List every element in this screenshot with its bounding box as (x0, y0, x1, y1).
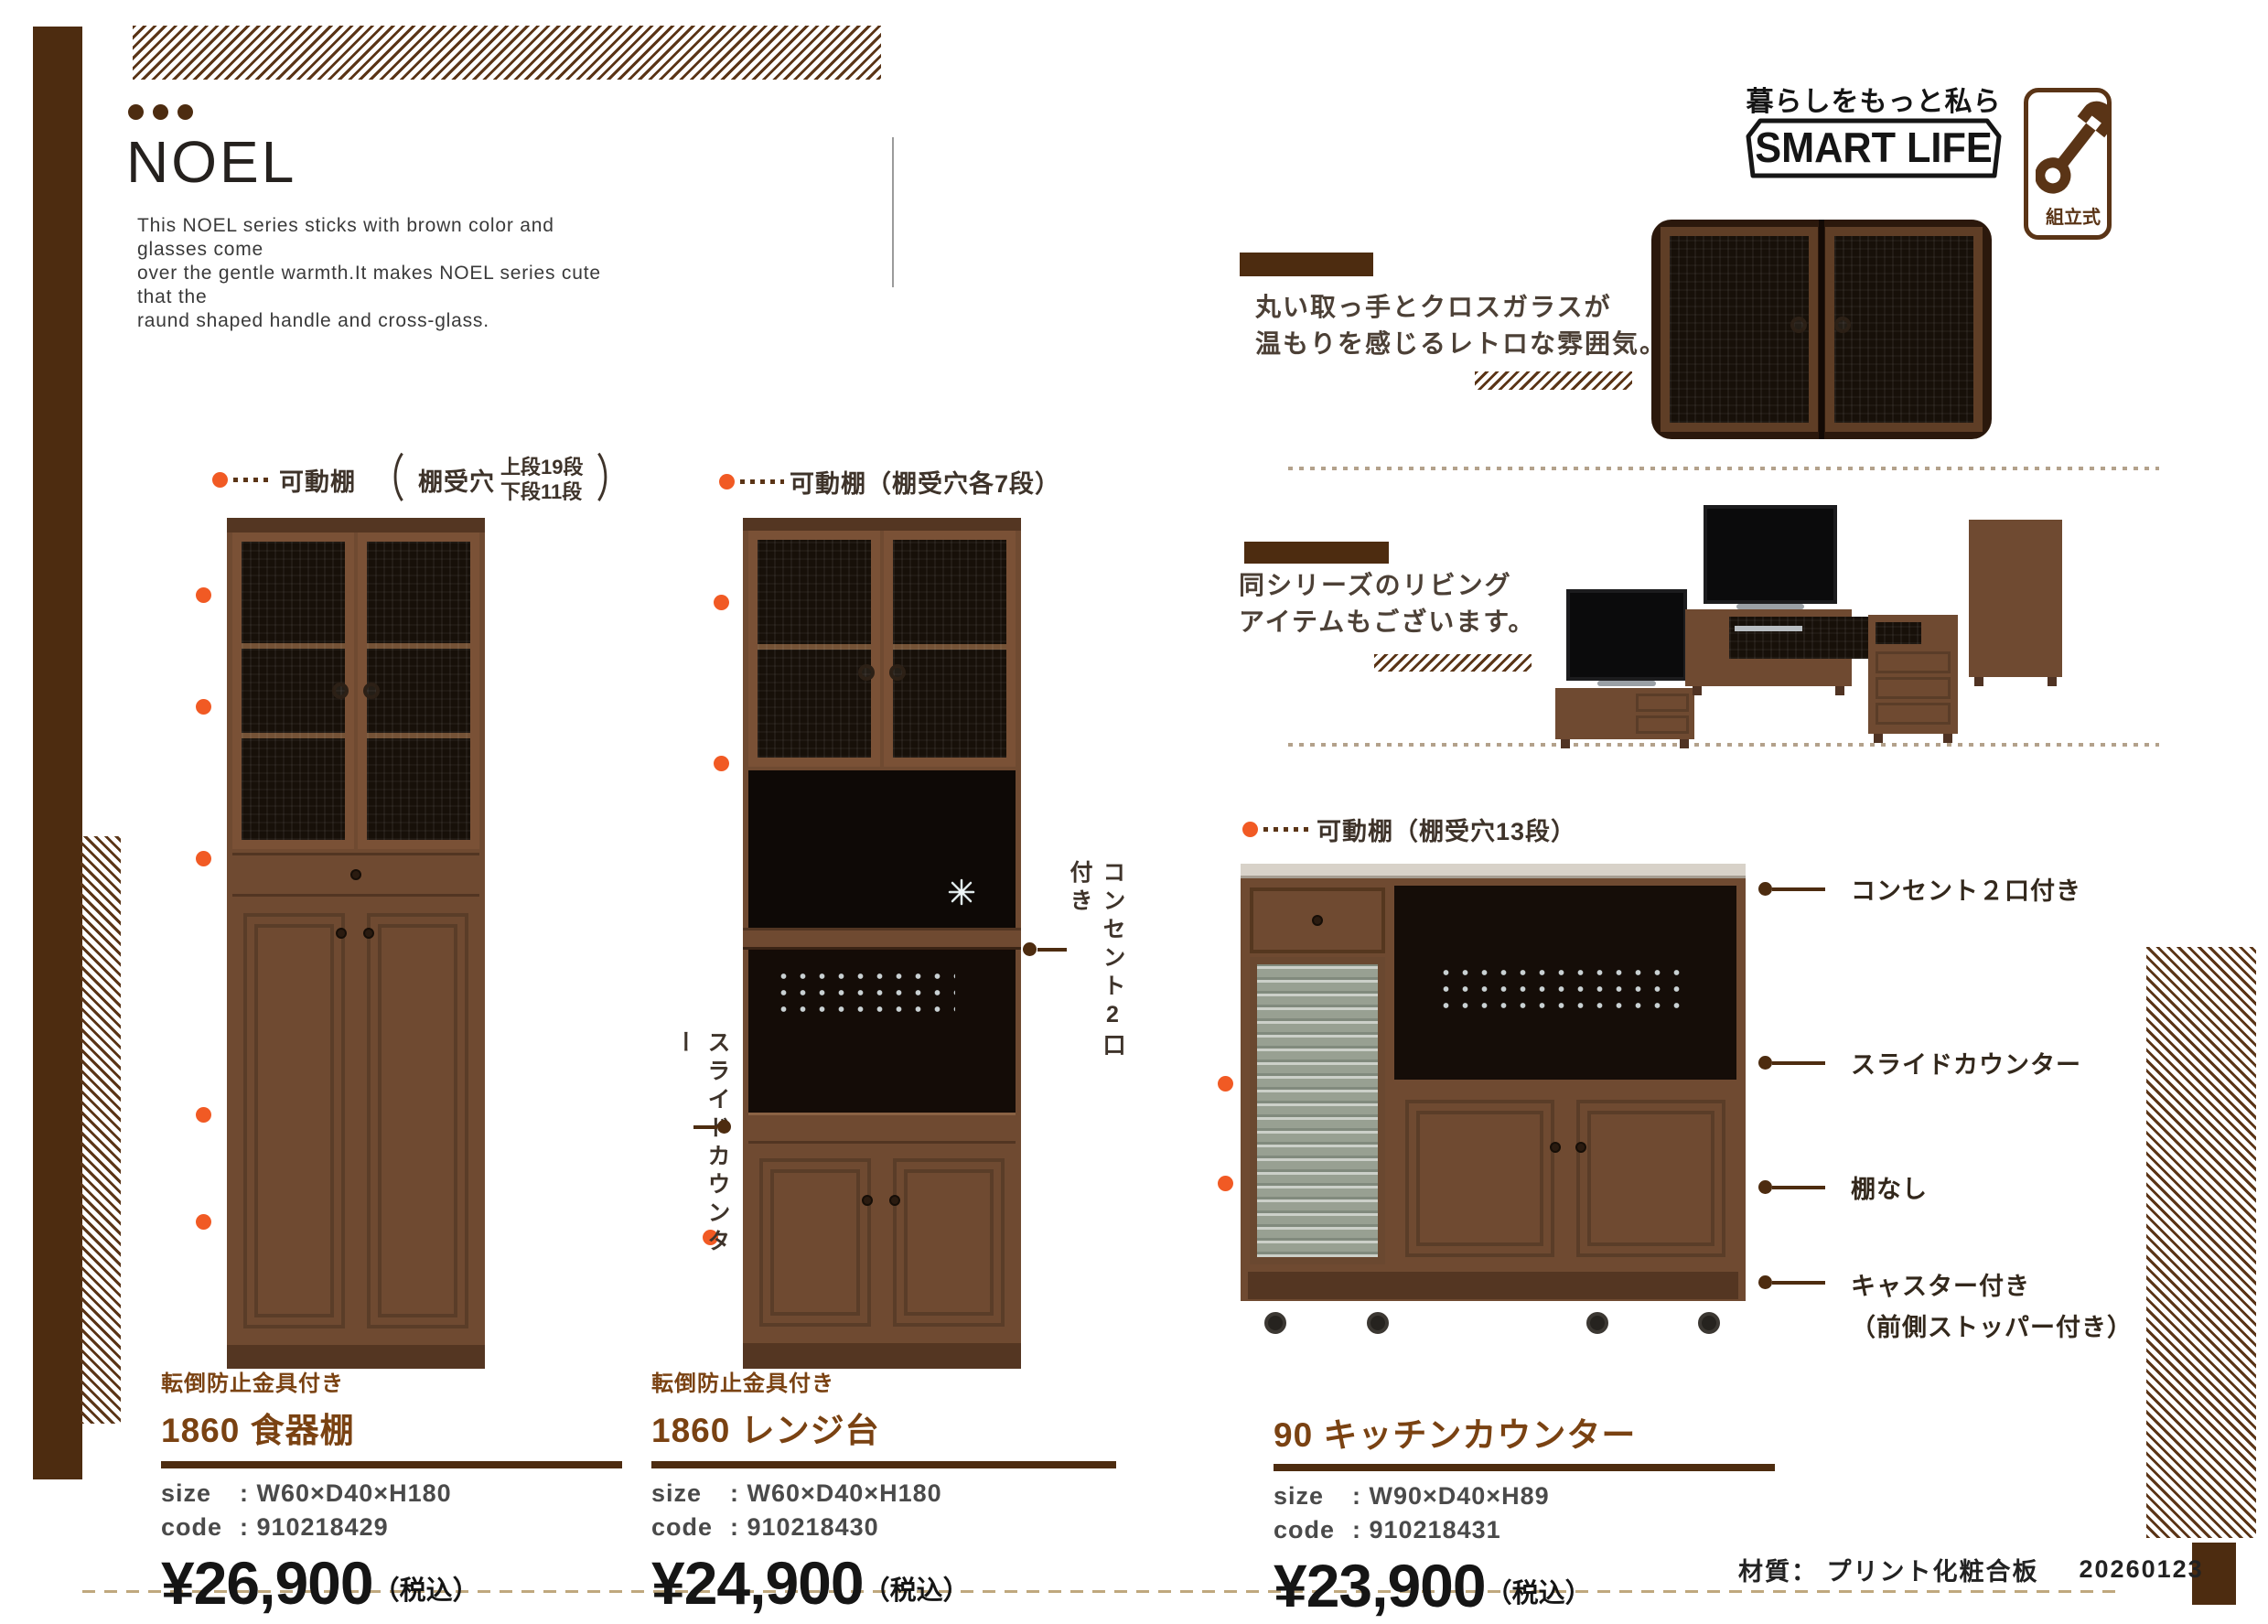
drawer (1876, 651, 1951, 673)
open-compartment (748, 770, 1016, 928)
feature-hatch-strip (1475, 371, 1632, 390)
fluted-glass-door (1250, 957, 1385, 1264)
product1-photo-cupboard (227, 518, 485, 1369)
ring-handle-icon (363, 683, 380, 699)
smart-life-logo: SMART LIFE (1744, 117, 2004, 179)
wood-door (748, 1147, 880, 1338)
door-gap (1819, 220, 1824, 439)
product2-annotation-outlet: コンセント2口付き (1063, 860, 1129, 1080)
paren-close: ） (597, 454, 632, 505)
page-title: NOEL (126, 128, 296, 196)
glass-cabinet (1969, 520, 2062, 677)
glass-door-section (232, 532, 479, 849)
callout-lower: 下段11段 (500, 479, 583, 504)
tax-note: （税込） (864, 1569, 970, 1613)
vented-compartment (748, 950, 1016, 1113)
orange-dot-icon (719, 474, 735, 489)
drawer (1250, 887, 1385, 953)
size-label: size (651, 1479, 730, 1508)
sparkle-icon (948, 878, 975, 906)
callout-text: 棚なし (1851, 1169, 1928, 1205)
shelf-pin-dot (196, 699, 211, 715)
left-hatch-band (81, 836, 121, 1424)
dotted-leader (1263, 827, 1311, 832)
cross-glass (1670, 236, 1809, 423)
code-label: code (651, 1513, 730, 1542)
annotation-dot (717, 1120, 731, 1134)
material-text: 材質： プリント化粧合板 (1738, 1552, 2039, 1587)
closeup-photo-glass-doors (1651, 220, 1992, 439)
tax-note: （税込） (373, 1569, 479, 1613)
annotation-dot (1758, 882, 1772, 896)
shelf-pin-dot (196, 587, 211, 603)
shelf-pin-dot (1218, 1076, 1233, 1092)
feature-hatch-strip (1374, 654, 1532, 672)
code-label: code (161, 1513, 240, 1542)
lower-doors (1394, 1089, 1736, 1268)
right-hatch-band (2146, 947, 2256, 1538)
dotted-leader (233, 478, 274, 482)
ring-handle-icon (1834, 317, 1851, 333)
header-dots (128, 104, 193, 120)
vent-holes (1436, 964, 1682, 1016)
price-row: ¥23,900 （税込） (1274, 1555, 1775, 1616)
size-value: : W60×D40×H180 (730, 1479, 942, 1507)
product-rule (161, 1461, 622, 1468)
product2-photo-rangeboard (743, 518, 1021, 1369)
shelf-pin-dot (196, 851, 211, 866)
shelf-pin-dot (714, 595, 729, 610)
drawer (1876, 677, 1951, 699)
counter-top (1241, 864, 1746, 878)
cabinet-crown (227, 518, 485, 532)
series-description: This NOEL series sticks with brown color… (137, 214, 613, 333)
furniture-feet (1561, 739, 1689, 748)
code-row: code: 910218431 (1274, 1516, 1775, 1544)
left-edge-bar (33, 27, 82, 1479)
product3-info: 90 キッチンカウンター size: W90×D40×H89 code: 910… (1274, 1407, 1775, 1616)
tv (1704, 505, 1837, 604)
product3-photo-counter (1241, 864, 1746, 1369)
product-rule (651, 1461, 1116, 1468)
wrench-icon (2036, 96, 2107, 208)
tv-stand (1597, 681, 1656, 686)
paren-open: （ (369, 454, 404, 505)
mid-shelf (743, 928, 1021, 950)
size-value: : W60×D40×H180 (240, 1479, 452, 1507)
tv (1566, 589, 1687, 681)
callout-text: コンセント２口付き (1851, 871, 2081, 907)
furniture-feet (1974, 677, 2057, 686)
knob-icon (350, 869, 361, 880)
code-value: : 910218431 (1352, 1516, 1501, 1543)
lower-doors (232, 900, 479, 1343)
wood-door (1394, 1089, 1564, 1268)
caster-icon (1586, 1312, 1608, 1334)
tax-note: （税込） (1486, 1572, 1592, 1616)
feature-series-line2: アイテムもございます。 (1239, 604, 1535, 640)
knob-icon (1575, 1142, 1586, 1153)
price: ¥24,900 (651, 1553, 864, 1613)
product-rule (1274, 1464, 1775, 1471)
price-row: ¥26,900 （税込） (161, 1553, 622, 1613)
living-items-photo (1555, 494, 2132, 747)
material-note: 材質： プリント化粧合板 20260123 (1738, 1552, 2204, 1587)
code-value: : 910218429 (240, 1513, 389, 1541)
size-row: size: W60×D40×H180 (161, 1479, 622, 1508)
callout-label: 可動棚（棚受穴13段） (1317, 812, 1576, 847)
dot-icon (153, 104, 168, 120)
drawer (1876, 703, 1951, 725)
code-label: code (1274, 1516, 1352, 1544)
section-separator-top (1288, 467, 2159, 470)
knob-icon (336, 928, 347, 939)
wood-door (884, 1147, 1016, 1338)
size-label: size (161, 1479, 240, 1508)
orange-dot-icon (1242, 822, 1258, 837)
furniture-feet (1874, 734, 1952, 743)
tv-board-small (1555, 688, 1694, 739)
knob-icon (363, 928, 374, 939)
cabinet-crown (743, 518, 1021, 531)
cross-glass (1834, 236, 1973, 423)
product-name: 1860 レンジ台 (651, 1403, 1116, 1452)
feature-retro-text: 丸い取っ手とクロスガラスが 温もりを感じるレトロな雰囲気。 (1255, 289, 1667, 362)
ring-handle-icon (889, 664, 906, 681)
callout-subtext: （前側ストッパー付き） (1851, 1307, 2133, 1343)
callout-text: キャスター付き (1851, 1266, 2133, 1302)
chest (1868, 615, 1958, 734)
tv-board-wide (1685, 609, 1852, 686)
callout-outlet: コンセント２口付き (1758, 871, 2081, 907)
callout-text: スライドカウンター (1851, 1045, 2081, 1081)
chest-window (1876, 622, 1921, 644)
size-value: : W90×D40×H89 (1352, 1482, 1550, 1510)
dotted-leader (740, 479, 784, 484)
knob-icon (1550, 1142, 1561, 1153)
code-value: : 910218430 (730, 1513, 879, 1541)
product1-callout-shelf: 可動棚 （ 棚受穴 上段19段 下段11段 ） (212, 450, 640, 509)
wood-door (232, 900, 354, 1343)
product1-info: 転倒防止金具付き 1860 食器棚 size: W60×D40×H180 cod… (161, 1365, 622, 1613)
ring-handle-icon (1790, 317, 1807, 333)
price-row: ¥24,900 （税込） (651, 1553, 1116, 1613)
product-name: 1860 食器棚 (161, 1403, 622, 1452)
wood-door (1567, 1089, 1736, 1268)
product2-info: 転倒防止金具付き 1860 レンジ台 size: W60×D40×H180 co… (651, 1365, 1116, 1613)
glass-door (884, 531, 1016, 767)
date-code: 20260123 (2080, 1555, 2204, 1584)
anti-tip-label: 転倒防止金具付き (651, 1365, 1116, 1397)
shelf-pin-dot (714, 756, 729, 771)
section-bar (1244, 542, 1389, 564)
price: ¥26,900 (161, 1553, 373, 1613)
callout-label: 可動棚 (279, 462, 356, 498)
header-divider (892, 137, 894, 287)
knob-icon (889, 1195, 900, 1206)
logo-text: SMART LIFE (1752, 117, 1996, 179)
shelf-pin-dot (196, 1107, 211, 1123)
glass-door-section (748, 531, 1016, 767)
annotation-line (1772, 887, 1825, 891)
size-row: size: W60×D40×H180 (651, 1479, 1116, 1508)
bottom-rail (1248, 1272, 1738, 1299)
code-row: code: 910218430 (651, 1513, 1116, 1542)
series-description-line: raund shaped handle and cross-glass. (137, 309, 613, 333)
lower-doors (748, 1147, 1016, 1338)
annotation-line (1772, 1061, 1825, 1065)
caster-icon (1264, 1312, 1286, 1334)
feature-retro-line1: 丸い取っ手とクロスガラスが (1255, 289, 1667, 326)
knob-icon (1312, 915, 1323, 926)
code-row: code: 910218429 (161, 1513, 622, 1542)
top-hatch-band (133, 26, 881, 80)
annotation-dot (1758, 1056, 1772, 1070)
caster-icon (1698, 1312, 1720, 1334)
callout-slide-counter: スライドカウンター (1758, 1045, 2081, 1081)
size-row: size: W90×D40×H89 (1274, 1482, 1775, 1511)
furniture-feet (1693, 686, 1844, 695)
orange-dot-icon (212, 472, 228, 488)
callout-prefix: 棚受穴 (418, 462, 495, 498)
ring-handle-icon (332, 683, 349, 699)
feature-retro-line2: 温もりを感じるレトロな雰囲気。 (1255, 326, 1667, 362)
assembly-badge: 組立式 (2024, 88, 2112, 240)
annotation-line (693, 1125, 717, 1129)
drawer (1636, 694, 1689, 712)
price: ¥23,900 (1274, 1555, 1486, 1616)
glass-door (748, 531, 880, 767)
size-label: size (1274, 1482, 1352, 1511)
callout-no-shelf: 棚なし (1758, 1169, 1928, 1205)
assembly-badge-label: 組立式 (2046, 202, 2101, 229)
feature-series-text: 同シリーズのリビング アイテムもございます。 (1239, 567, 1535, 640)
shelf-pin-dot (196, 1214, 211, 1230)
vent-holes (774, 968, 955, 1016)
dot-icon (177, 104, 193, 120)
product-name: 90 キッチンカウンター (1274, 1407, 1775, 1457)
callout-stack: 上段19段 下段11段 (500, 455, 583, 504)
annotation-line (1772, 1186, 1825, 1189)
shelf-pin-dot (1218, 1176, 1233, 1191)
callout-casters: キャスター付き （前側ストッパー付き） (1758, 1266, 2133, 1343)
wood-door (358, 900, 479, 1343)
callout-upper: 上段19段 (500, 455, 583, 479)
callout-label: 可動棚（棚受穴各7段） (790, 464, 1060, 500)
knob-icon (862, 1195, 873, 1206)
annotation-line (1772, 1281, 1825, 1285)
drawer (1636, 715, 1689, 734)
series-description-line: over the gentle warmth.It makes NOEL ser… (137, 262, 613, 309)
anti-tip-label: 転倒防止金具付き (161, 1365, 622, 1397)
product2-annotation-slide: スライドカウンター (668, 1030, 734, 1268)
product2-callout-shelf: 可動棚（棚受穴各7段） (719, 463, 1060, 500)
product3-callout-shelf: 可動棚（棚受穴13段） (1242, 811, 1576, 847)
annotation-dot (1023, 942, 1037, 956)
series-description-line: This NOEL series sticks with brown color… (137, 214, 613, 262)
annotation-dot (1758, 1275, 1772, 1289)
section-bar (1240, 253, 1373, 276)
slide-counter (748, 1113, 1016, 1144)
caster-icon (1367, 1312, 1389, 1334)
annotation-dot (1758, 1180, 1772, 1194)
ring-handle-icon (858, 664, 875, 681)
open-compartment (1394, 886, 1736, 1080)
feature-series-line1: 同シリーズのリビング (1239, 567, 1535, 604)
dot-icon (128, 104, 144, 120)
